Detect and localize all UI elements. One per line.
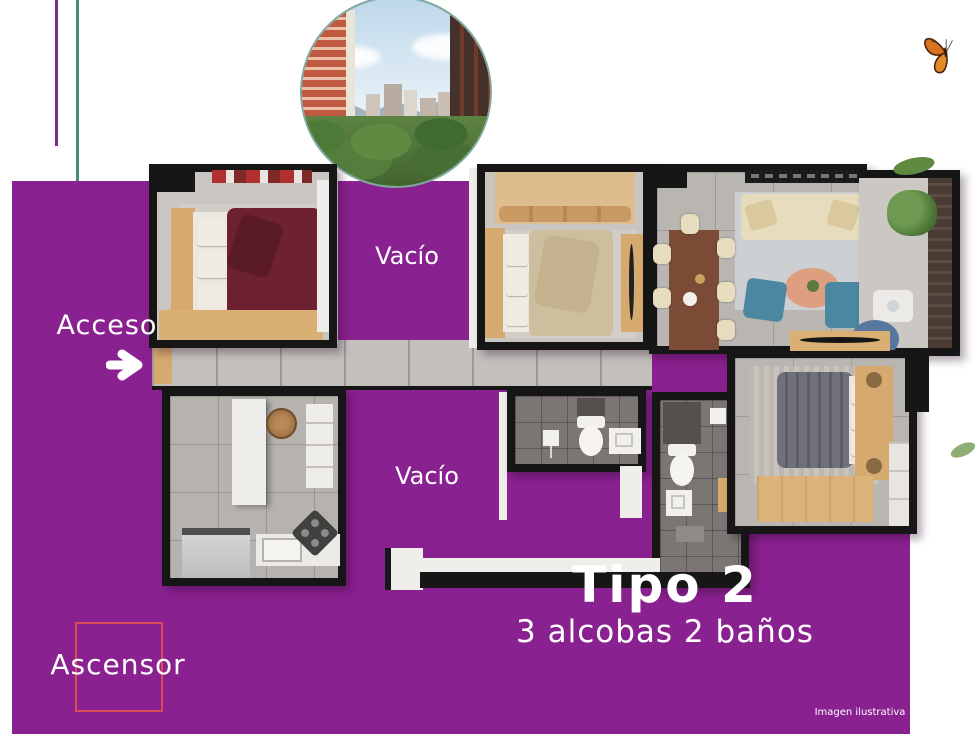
acceso-arrow-icon [106,346,146,384]
wall-patch [649,164,687,188]
vacio-upper-label: Vacío [352,242,462,270]
bed-bench [757,476,873,522]
beige-pillow [533,234,601,315]
washer [182,528,250,578]
toilet-bowl [670,454,694,486]
dining-chair [681,214,699,234]
wall-step [385,548,423,590]
plate [683,292,697,306]
sofa [741,194,863,240]
wall-art [212,170,312,183]
floorplan-flyer: { "labels": { "acceso": "Acceso", "vacio… [0,0,979,734]
sofa-cushion [744,199,778,232]
beige-duvet [529,230,613,336]
dining-chair [717,282,735,302]
void2-wall-right [499,392,507,520]
headboard [485,228,505,338]
sink [666,490,692,516]
shelf-art [745,170,863,183]
bedroom-3 [727,350,917,534]
ascensor-label: Ascensor [38,648,198,681]
fixture [543,430,559,446]
bedroom-2 [477,164,651,350]
shower-tiles [663,402,701,444]
sink [262,538,302,562]
closet-strip [317,180,329,332]
bed-bench [159,310,323,340]
tv-console [790,331,890,351]
toilet-bowl [579,426,603,456]
wall-patch [149,164,195,192]
shower-control [710,408,726,424]
blue-ottoman [742,277,787,322]
bench-decor [629,244,634,320]
entry-cabinet [154,342,172,384]
wall-patch-white [620,466,642,518]
footnote-label: Imagen ilustrativa [800,707,920,718]
maroon-pillow [225,213,284,280]
vacio-lower-label: Vacío [372,462,482,490]
closet [889,442,909,526]
headboard [855,366,893,480]
plan-type-title: Tipo 2 [520,556,810,614]
bath-rug [676,526,704,542]
wall-patch [905,354,929,412]
dining-chair [653,288,671,308]
wardrobe-drawers [499,206,631,222]
bowl [695,274,705,284]
stray-leaf [949,439,978,461]
city-skyline-photo [300,0,492,188]
balcony-decor [887,300,899,312]
vanity-sink [609,428,641,454]
vertical-teal-line [76,0,79,197]
bench [621,234,643,332]
butterfly-icon [918,23,967,80]
dining-chair [717,238,735,258]
living-dining-room [649,164,867,354]
kitchen [162,388,346,586]
tv [800,337,880,343]
dining-chair [717,320,735,340]
dining-table [669,230,719,350]
plan-features-subtitle: 3 alcobas 2 baños [495,614,835,650]
wardrobe [495,172,635,224]
wall-basket [266,408,297,439]
balcony [859,170,960,356]
table-plant [807,280,819,292]
balcony-table [873,290,913,322]
bathroom-1 [507,388,646,472]
sofa-cushion [826,199,860,232]
headboard [171,208,195,322]
void-wall-right [469,168,477,348]
cabinets [306,404,333,488]
grey-duvet [777,372,853,468]
vertical-purple-line [55,0,58,146]
shelf-books [751,174,857,178]
partition-wall [232,399,266,505]
balcony-plant [887,190,937,236]
dining-chair [653,244,671,264]
acceso-label: Acceso [52,310,162,341]
